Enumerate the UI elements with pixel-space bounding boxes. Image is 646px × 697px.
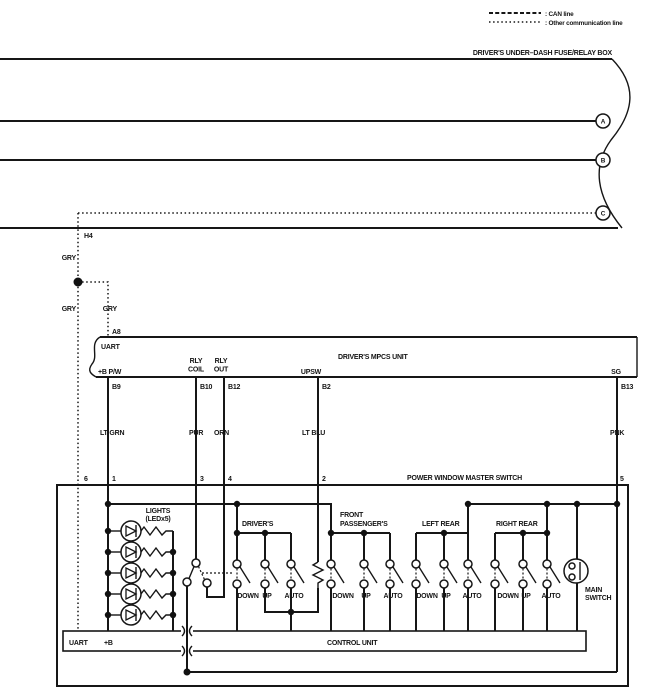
drivers-auto-switch bbox=[287, 560, 304, 588]
lr-down-switch bbox=[412, 560, 429, 588]
fp-down-switch bbox=[327, 560, 344, 588]
mpcs-uart-terminal: UART bbox=[101, 344, 121, 351]
drivers-up-switch bbox=[261, 560, 278, 588]
fp-auto-label: AUTO bbox=[384, 593, 404, 600]
diagram-canvas: : CAN line : Other communication line DR… bbox=[0, 0, 646, 697]
led-row bbox=[108, 542, 173, 562]
master-switch-title: POWER WINDOW MASTER SWITCH bbox=[407, 475, 522, 482]
drivers-bank: DRIVER'S DOWN UP AUTO bbox=[233, 521, 304, 631]
control-unit-label: CONTROL UNIT bbox=[327, 640, 378, 647]
mpcs-pin-b2: B2 bbox=[322, 384, 331, 391]
fuse-relay-box: DRIVER'S UNDER–DASH FUSE/RELAY BOX A B C bbox=[0, 50, 630, 228]
drivers-up-label: UP bbox=[262, 593, 272, 600]
rr-auto-switch bbox=[543, 560, 560, 588]
wire-gry-top-label: GRY bbox=[62, 255, 77, 262]
mpcs-pin-b9: B9 bbox=[112, 384, 121, 391]
wire-orn-label: ORN bbox=[214, 430, 229, 437]
mpcs-title: DRIVER'S MPCS UNIT bbox=[338, 354, 409, 361]
led-row bbox=[108, 584, 173, 604]
control-unit-b-terminal: +B bbox=[104, 640, 113, 647]
rr-up-switch bbox=[519, 560, 536, 588]
wire-pur-label: PUR bbox=[189, 430, 203, 437]
uart-comm-harness: H4 GRY GRY GRY A8 bbox=[62, 213, 121, 631]
led-light-array: LIGHTS (LEDx5) bbox=[108, 508, 173, 631]
wire-pnk-label: PNK bbox=[610, 430, 624, 437]
mpcs-pin-b13: B13 bbox=[621, 384, 634, 391]
fp-label-1: FRONT bbox=[340, 512, 364, 519]
ms-pin-5: 5 bbox=[620, 476, 624, 483]
wire-lt-blu-label: LT BLU bbox=[302, 430, 325, 437]
wire-lt-grn-label: LT GRN bbox=[100, 430, 124, 437]
rr-down-label: DOWN bbox=[497, 593, 519, 600]
mpcs-rly-coil-terminal-2: COIL bbox=[188, 367, 205, 374]
rr-label: RIGHT REAR bbox=[496, 521, 538, 528]
right-rear-bank: RIGHT REAR DOWN UP AUTO bbox=[491, 521, 561, 631]
wire-gry-left-label: GRY bbox=[62, 306, 77, 313]
fuse-box-torn-edge bbox=[599, 59, 630, 228]
relay-blade bbox=[189, 567, 194, 579]
control-unit: UART +B CONTROL UNIT bbox=[63, 622, 617, 672]
drivers-down-switch bbox=[233, 560, 250, 588]
mpcs-rly-out-terminal-2: OUT bbox=[214, 367, 229, 374]
mpcs-pin-b10: B10 bbox=[200, 384, 213, 391]
legend-other-label: : Other communication line bbox=[545, 20, 623, 27]
connector-h4-label: H4 bbox=[84, 233, 93, 240]
connector-a8-label: A8 bbox=[112, 329, 121, 336]
ms-pin-2: 2 bbox=[322, 476, 326, 483]
left-rear-bank: LEFT REAR DOWN UP AUTO bbox=[412, 521, 482, 631]
lr-up-switch bbox=[440, 560, 457, 588]
mpcs-rly-out-terminal-1: RLY bbox=[215, 358, 228, 365]
fp-auto-switch bbox=[386, 560, 403, 588]
ms-pin-6: 6 bbox=[84, 476, 88, 483]
mpcs-unit: DRIVER'S MPCS UNIT UART +B P/W RLY COIL … bbox=[90, 337, 637, 391]
rr-down-switch bbox=[491, 560, 508, 588]
comm-splice-dot bbox=[74, 278, 83, 287]
lr-auto-label: AUTO bbox=[463, 593, 483, 600]
lr-auto-switch bbox=[464, 560, 481, 588]
legend-can-label: : CAN line bbox=[545, 11, 574, 18]
fp-up-label: UP bbox=[361, 593, 371, 600]
lights-count-label: (LEDx5) bbox=[145, 516, 170, 523]
fp-down-label: DOWN bbox=[332, 593, 354, 600]
led-row bbox=[108, 605, 173, 625]
lr-label: LEFT REAR bbox=[422, 521, 460, 528]
fuse-box-title: DRIVER'S UNDER–DASH FUSE/RELAY BOX bbox=[473, 50, 613, 57]
main-switch-label-2: SWITCH bbox=[585, 595, 612, 602]
terminal-b-label: B bbox=[601, 158, 606, 165]
drivers-down-label: DOWN bbox=[237, 593, 259, 600]
lr-up-label: UP bbox=[441, 593, 451, 600]
rr-auto-label: AUTO bbox=[542, 593, 562, 600]
mpcs-upsw-terminal: UPSW bbox=[301, 369, 322, 376]
fp-label-2: PASSENGER'S bbox=[340, 521, 388, 528]
terminal-a-label: A bbox=[601, 119, 606, 126]
mpcs-pin-b12: B12 bbox=[228, 384, 241, 391]
terminal-line-a: A bbox=[0, 114, 610, 128]
drivers-auto-label: AUTO bbox=[285, 593, 305, 600]
main-switch-label-1: MAIN bbox=[585, 587, 602, 594]
led-row bbox=[108, 563, 173, 583]
front-passengers-bank: FRONT PASSENGER'S DOWN UP AUTO bbox=[327, 512, 403, 631]
ms-pin-3: 3 bbox=[200, 476, 204, 483]
control-unit-outline bbox=[63, 631, 586, 651]
led-row bbox=[108, 521, 173, 541]
mpcs-rly-coil-terminal-1: RLY bbox=[190, 358, 203, 365]
mpcs-sg-terminal: SG bbox=[611, 369, 621, 376]
wire-orn bbox=[207, 377, 224, 597]
terminal-line-c: C bbox=[78, 206, 610, 220]
drivers-label: DRIVER'S bbox=[242, 521, 274, 528]
fp-up-switch bbox=[360, 560, 377, 588]
mpcs-b-pw-terminal: +B P/W bbox=[98, 369, 122, 376]
ms-pin-1: 1 bbox=[112, 476, 116, 483]
control-unit-uart-terminal: UART bbox=[69, 640, 89, 647]
lights-label: LIGHTS bbox=[146, 508, 171, 515]
wire-gry-right-label: GRY bbox=[103, 306, 118, 313]
ms-pin-4: 4 bbox=[228, 476, 232, 483]
terminal-c-label: C bbox=[601, 211, 606, 218]
lr-down-label: DOWN bbox=[416, 593, 438, 600]
terminal-line-b: B bbox=[0, 153, 610, 167]
legend: : CAN line : Other communication line bbox=[489, 11, 623, 27]
main-switch: MAIN SWITCH bbox=[564, 559, 612, 631]
wiring-diagram: : CAN line : Other communication line DR… bbox=[0, 0, 646, 697]
